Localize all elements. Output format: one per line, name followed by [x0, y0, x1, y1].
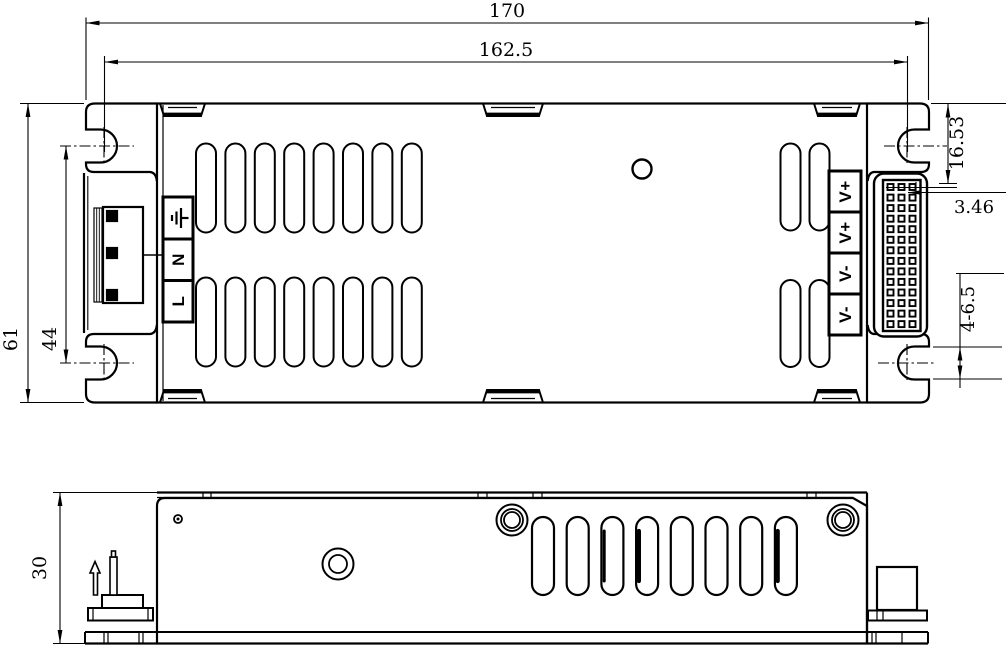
- pin-grid-connector: [874, 174, 927, 337]
- pin-hole: [888, 279, 894, 285]
- pin-hole: [910, 321, 916, 327]
- ac-inlet-pin: [107, 248, 117, 258]
- mounting-flange-top-right: [867, 104, 929, 182]
- output-terminal-label: V+: [836, 221, 855, 243]
- dim-overall-width: 61: [0, 104, 84, 403]
- pin-hole: [899, 290, 905, 296]
- pin-hole: [899, 247, 905, 253]
- vent-slot: [343, 144, 363, 233]
- ac-inlet-block: [102, 595, 143, 608]
- dim-label-output-offset: 16.53: [946, 116, 968, 170]
- output-terminal-label: V-: [836, 306, 855, 323]
- dim-label-pin-pitch: 3.46: [954, 197, 994, 218]
- dim-output-offset: 16.53: [931, 104, 1006, 184]
- pin-hole: [910, 226, 916, 232]
- pin-hole: [899, 300, 905, 306]
- ac-inlet-connector: [94, 207, 163, 303]
- vent-slot: [372, 144, 392, 233]
- dim-label-overall-width: 61: [0, 327, 22, 351]
- pin-hole: [888, 321, 894, 327]
- drawing-root: N L V+ V+ V- V-: [0, 0, 1006, 644]
- vent-slot: [567, 517, 589, 595]
- pin-hole: [899, 226, 905, 232]
- vent-slot: [402, 278, 422, 367]
- vent-slot: [372, 278, 392, 367]
- pin-hole: [899, 237, 905, 243]
- pin-hole: [910, 258, 916, 264]
- output-connector-body: [877, 567, 917, 610]
- screw-middle: [323, 549, 354, 580]
- vent-slot: [284, 144, 304, 233]
- mounting-flange-bottom-left: [86, 325, 157, 403]
- pin-hole: [899, 205, 905, 211]
- screw-right: [828, 505, 859, 536]
- pin-hole: [899, 321, 905, 327]
- dim-label-overall-length: 170: [489, 0, 525, 22]
- pin-hole: [888, 300, 894, 306]
- pin-hole: [888, 226, 894, 232]
- pin-hole: [888, 247, 894, 253]
- dim-label-mount-slots: 4-6.5: [958, 286, 979, 332]
- output-connector-side: [868, 567, 927, 621]
- engineering-drawing: N L V+ V+ V- V-: [0, 0, 1008, 654]
- ac-inlet-pin-tip: [112, 551, 116, 557]
- pin-hole: [899, 195, 905, 201]
- pin-hole: [910, 237, 916, 243]
- vent-slot: [255, 278, 275, 367]
- pin-hole: [910, 247, 916, 253]
- pin-hole: [910, 279, 916, 285]
- vent-slot: [225, 278, 245, 367]
- pin-hole: [899, 268, 905, 274]
- pin-hole: [910, 268, 916, 274]
- pin-hole: [888, 311, 894, 317]
- vent-slot: [225, 144, 245, 233]
- vent-slot: [810, 144, 830, 231]
- dim-label-slot-span-width: 44: [39, 327, 61, 351]
- ac-inlet-strips: [94, 208, 102, 302]
- pin-hole: [888, 258, 894, 264]
- pin-hole: [899, 279, 905, 285]
- pin-hole: [910, 216, 916, 222]
- dim-label-height: 30: [29, 556, 51, 580]
- vent-slot: [706, 517, 728, 595]
- vent-slot: [314, 144, 334, 233]
- pin-hole: [888, 216, 894, 222]
- ac-inlet-bent-pin: [90, 562, 100, 596]
- bottom-rail-ticks: [104, 632, 902, 644]
- pin-hole: [910, 205, 916, 211]
- input-terminal-label-n: N: [169, 253, 188, 266]
- pin-hole: [888, 290, 894, 296]
- dim-label-slot-span-length: 162.5: [479, 39, 533, 61]
- top-view: N L V+ V+ V- V-: [60, 104, 947, 403]
- vent-slot: [343, 278, 363, 367]
- vent-slot: [740, 517, 762, 595]
- pin-hole: [888, 195, 894, 201]
- pin-hole: [888, 205, 894, 211]
- dim-slot-span-width: 44: [39, 146, 66, 363]
- vent-slots-side-view: [532, 517, 797, 595]
- pin-hole: [910, 290, 916, 296]
- pin-hole: [910, 300, 916, 306]
- vent-slot: [314, 278, 334, 367]
- vent-slot: [196, 144, 216, 233]
- ac-inlet-pin: [107, 211, 117, 221]
- vent-slot: [402, 144, 422, 233]
- output-terminal-label: V-: [836, 265, 855, 282]
- vent-slot: [781, 144, 801, 231]
- ac-inlet-side: [88, 551, 153, 621]
- pin-hole: [899, 311, 905, 317]
- input-terminal-label-l: L: [169, 296, 188, 307]
- ac-inlet-pin: [107, 290, 117, 300]
- vent-slot: [781, 280, 801, 367]
- ac-inlet-base-plate: [88, 608, 153, 621]
- input-terminal-block: N L: [163, 197, 193, 322]
- pin-grid-frame: [883, 180, 921, 331]
- small-hole: [174, 515, 182, 523]
- side-view: [85, 493, 928, 644]
- mounting-flange-top-left: [86, 104, 157, 182]
- vent-slot: [532, 517, 554, 595]
- output-terminal-block: V+ V+ V- V-: [829, 171, 861, 335]
- dim-mount-slots: 4-6.5: [933, 274, 1004, 389]
- vent-slot: [671, 517, 693, 595]
- vent-slot: [810, 280, 830, 367]
- pin-hole: [910, 311, 916, 317]
- ac-inlet-straight-pin: [110, 557, 117, 595]
- engineering-drawing-page: N L V+ V+ V- V-: [0, 0, 1008, 654]
- vent-slot: [255, 144, 275, 233]
- screw-left: [497, 505, 528, 536]
- output-terminal-label: V+: [836, 180, 855, 202]
- pin-hole: [899, 258, 905, 264]
- vent-slot: [284, 278, 304, 367]
- vent-slot: [196, 278, 216, 367]
- pin-hole: [888, 268, 894, 274]
- pin-hole: [910, 195, 916, 201]
- bottom-rail: [85, 632, 928, 644]
- pin-hole: [899, 216, 905, 222]
- pin-hole: [888, 237, 894, 243]
